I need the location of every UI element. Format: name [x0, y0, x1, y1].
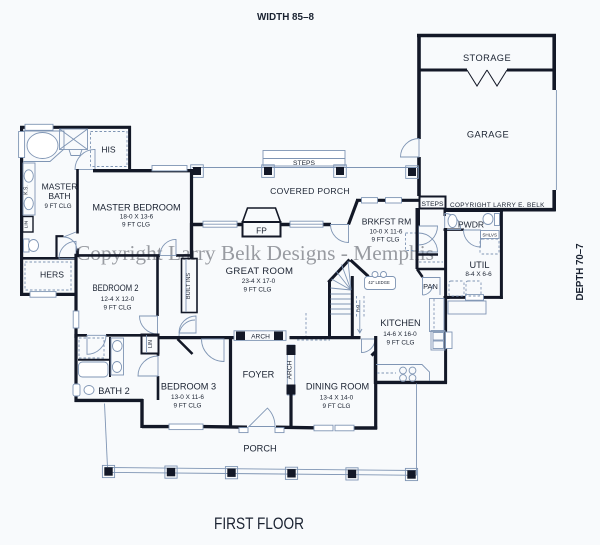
svg-text:MASTER BEDROOM: MASTER BEDROOM	[92, 203, 180, 213]
svg-text:23-4 X 17-0: 23-4 X 17-0	[242, 278, 276, 285]
svg-text:ARCH: ARCH	[251, 334, 270, 341]
svg-text:K.S.: K.S.	[24, 185, 30, 194]
svg-text:WIDTH 85–8: WIDTH 85–8	[257, 11, 314, 23]
svg-text:18-0 X 13-6: 18-0 X 13-6	[120, 214, 154, 221]
svg-text:ARCH: ARCH	[286, 360, 293, 379]
svg-text:Copyright Larry Belk Designs -: Copyright Larry Belk Designs - Memphis	[76, 241, 434, 265]
svg-text:13-0 X 11-6: 13-0 X 11-6	[171, 394, 204, 401]
svg-text:DINING ROOM: DINING ROOM	[306, 382, 369, 392]
svg-text:9 FT CLG: 9 FT CLG	[44, 203, 71, 210]
svg-text:9 FT CLG: 9 FT CLG	[244, 287, 272, 294]
svg-text:10-0 X 11-6: 10-0 X 11-6	[370, 228, 403, 235]
svg-text:BATH: BATH	[48, 191, 70, 201]
svg-text:9 FT CLG: 9 FT CLG	[104, 305, 132, 312]
svg-text:PORCH: PORCH	[243, 444, 276, 454]
svg-text:GARAGE: GARAGE	[467, 130, 509, 140]
svg-text:MASTER: MASTER	[42, 182, 78, 192]
svg-text:9 FT CLG: 9 FT CLG	[387, 339, 415, 346]
svg-text:COVERED PORCH: COVERED PORCH	[270, 186, 350, 196]
svg-text:LIN: LIN	[24, 220, 30, 228]
svg-text:DN: DN	[356, 305, 362, 312]
svg-text:KITCHEN: KITCHEN	[380, 318, 420, 328]
svg-text:BEDROOM 3: BEDROOM 3	[161, 382, 216, 392]
svg-text:DEPTH 70–7: DEPTH 70–7	[574, 243, 586, 300]
svg-text:FOYER: FOYER	[243, 370, 275, 380]
svg-text:14-6 X 16-0: 14-6 X 16-0	[383, 331, 417, 338]
svg-text:42" LEDGE: 42" LEDGE	[368, 280, 390, 285]
svg-text:BEDROOM 2: BEDROOM 2	[93, 283, 139, 293]
svg-text:13-4 X 14-0: 13-4 X 14-0	[320, 394, 354, 401]
svg-text:SHLVS: SHLVS	[482, 233, 497, 238]
svg-text:9 FT CLG: 9 FT CLG	[122, 222, 150, 229]
svg-text:9 FT CLG: 9 FT CLG	[372, 237, 400, 244]
svg-text:GREAT ROOM: GREAT ROOM	[226, 266, 294, 277]
svg-text:HIS: HIS	[101, 145, 116, 155]
svg-text:UTIL: UTIL	[470, 260, 490, 270]
svg-text:STORAGE: STORAGE	[463, 53, 511, 63]
svg-text:PWDR: PWDR	[458, 220, 484, 230]
svg-text:9 FT CLG: 9 FT CLG	[323, 403, 351, 410]
svg-text:8-4 X 6-6: 8-4 X 6-6	[465, 271, 492, 278]
svg-text:12-4 X 12-0: 12-4 X 12-0	[101, 296, 135, 303]
svg-text:FP: FP	[256, 226, 267, 236]
svg-text:STEPS: STEPS	[422, 201, 444, 208]
svg-text:9 FT CLG: 9 FT CLG	[174, 403, 202, 410]
svg-text:STEPS: STEPS	[293, 160, 315, 167]
svg-text:COPYRIGHT LARRY E. BELK: COPYRIGHT LARRY E. BELK	[450, 202, 545, 209]
svg-text:BRKFST RM: BRKFST RM	[362, 217, 412, 227]
svg-text:LIN: LIN	[148, 340, 154, 348]
svg-text:FIRST FLOOR: FIRST FLOOR	[214, 514, 304, 533]
svg-text:HERS: HERS	[40, 270, 64, 280]
svg-text:BUILT INS: BUILT INS	[186, 273, 192, 299]
svg-text:BATH 2: BATH 2	[98, 386, 129, 396]
svg-text:PAN: PAN	[423, 282, 438, 291]
